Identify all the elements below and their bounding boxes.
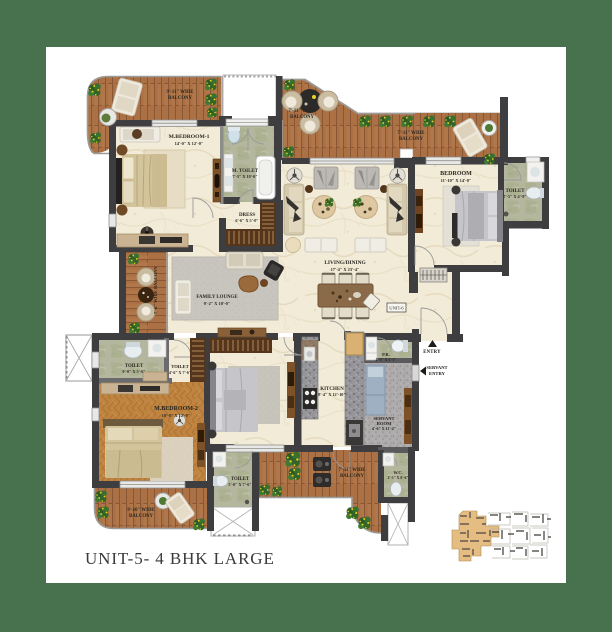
svg-text:BALCONY: BALCONY — [290, 115, 315, 120]
svg-text:P.R.: P.R. — [382, 352, 390, 357]
svg-text:7'-11" WIDE: 7'-11" WIDE — [339, 468, 366, 473]
svg-text:M.BEDROOM-1: M.BEDROOM-1 — [169, 134, 210, 140]
svg-text:8'-4" X 12'-10": 8'-4" X 12'-10" — [318, 392, 345, 397]
svg-text:TOILET: TOILET — [171, 364, 189, 369]
svg-text:BALCONY: BALCONY — [168, 96, 193, 101]
svg-text:BALCONY: BALCONY — [129, 514, 154, 519]
svg-text:FAMILY LOUNGE: FAMILY LOUNGE — [196, 295, 238, 300]
svg-text:14'-0" X 12'-0": 14'-0" X 12'-0" — [175, 141, 204, 146]
svg-text:M.BEDROOM-2: M.BEDROOM-2 — [154, 406, 198, 412]
svg-text:11'-10" X 14'-0": 11'-10" X 14'-0" — [441, 178, 472, 183]
svg-text:BALCONY: BALCONY — [399, 137, 424, 142]
svg-text:10'-0" X 12'-0": 10'-0" X 12'-0" — [162, 413, 191, 418]
svg-text:7'-6" WIDE BALCONY: 7'-6" WIDE BALCONY — [153, 265, 158, 314]
svg-text:ENTRY: ENTRY — [429, 371, 446, 376]
svg-text:4'-6" X 11'-2": 4'-6" X 11'-2" — [372, 426, 396, 431]
svg-text:ENTRY: ENTRY — [423, 350, 441, 355]
svg-text:4'-0" X 5'-3": 4'-0" X 5'-3" — [375, 358, 396, 362]
svg-text:5'-0" X 7'-6": 5'-0" X 7'-6" — [228, 482, 251, 487]
svg-text:SERVANT: SERVANT — [426, 365, 447, 370]
svg-text:17'-4" X 23'-4": 17'-4" X 23'-4" — [331, 267, 360, 272]
svg-text:7'-11" WIDE: 7'-11" WIDE — [289, 109, 316, 114]
svg-text:9'-2" X 10'-0": 9'-2" X 10'-0" — [204, 301, 231, 306]
svg-text:9'-10" WIDE: 9'-10" WIDE — [127, 508, 154, 513]
svg-text:UNIT-5- 4 BHK LARGE: UNIT-5- 4 BHK LARGE — [85, 549, 275, 568]
svg-text:W.C.: W.C. — [393, 470, 402, 475]
svg-text:7'-5" X 4'-9": 7'-5" X 4'-9" — [503, 194, 526, 199]
svg-text:BALCONY: BALCONY — [340, 474, 365, 479]
svg-text:7'-5" X 10'-0": 7'-5" X 10'-0" — [232, 174, 257, 179]
svg-text:BEDROOM: BEDROOM — [440, 171, 472, 177]
svg-text:7'-11" WIDE: 7'-11" WIDE — [398, 131, 425, 136]
svg-text:UNIT-6: UNIT-6 — [389, 306, 404, 311]
svg-text:6'-6" X 5'-0": 6'-6" X 5'-0" — [235, 218, 258, 223]
svg-text:LIVING/DINING: LIVING/DINING — [324, 260, 366, 266]
svg-text:2'-3" X 6'-6": 2'-3" X 6'-6" — [387, 476, 408, 480]
svg-text:4'-6" X 7'-6": 4'-6" X 7'-6" — [169, 370, 191, 375]
svg-text:9'-11" WIDE: 9'-11" WIDE — [167, 90, 194, 95]
svg-text:9'-0" X 5'-6": 9'-0" X 5'-6" — [122, 369, 145, 374]
